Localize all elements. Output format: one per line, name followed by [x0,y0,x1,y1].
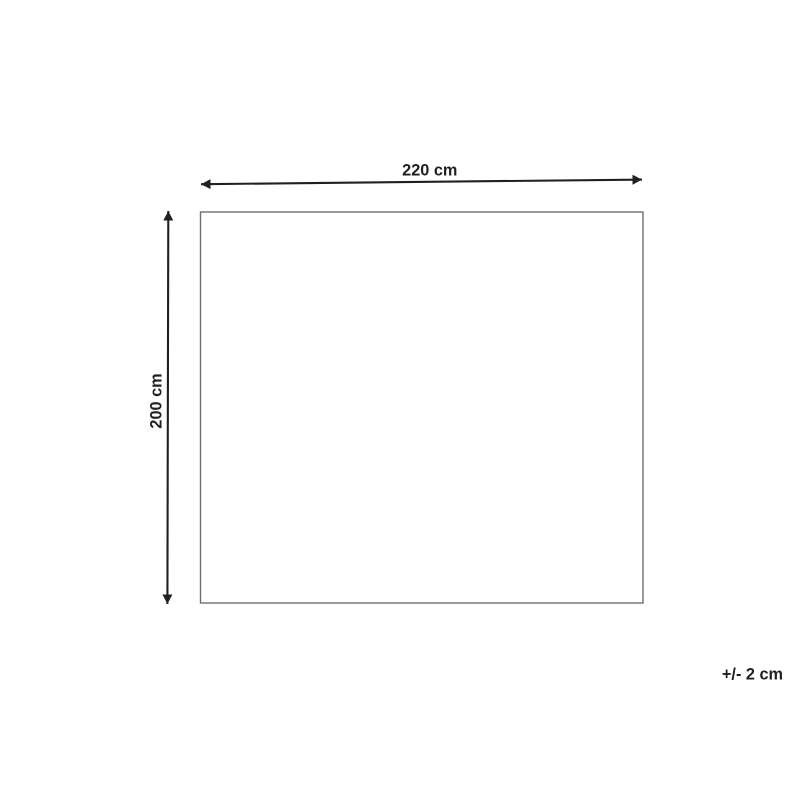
svg-text:220 cm: 220 cm [402,162,457,180]
svg-text:+/- 2 cm: +/- 2 cm [722,666,783,684]
svg-text:200 cm: 200 cm [148,373,166,428]
